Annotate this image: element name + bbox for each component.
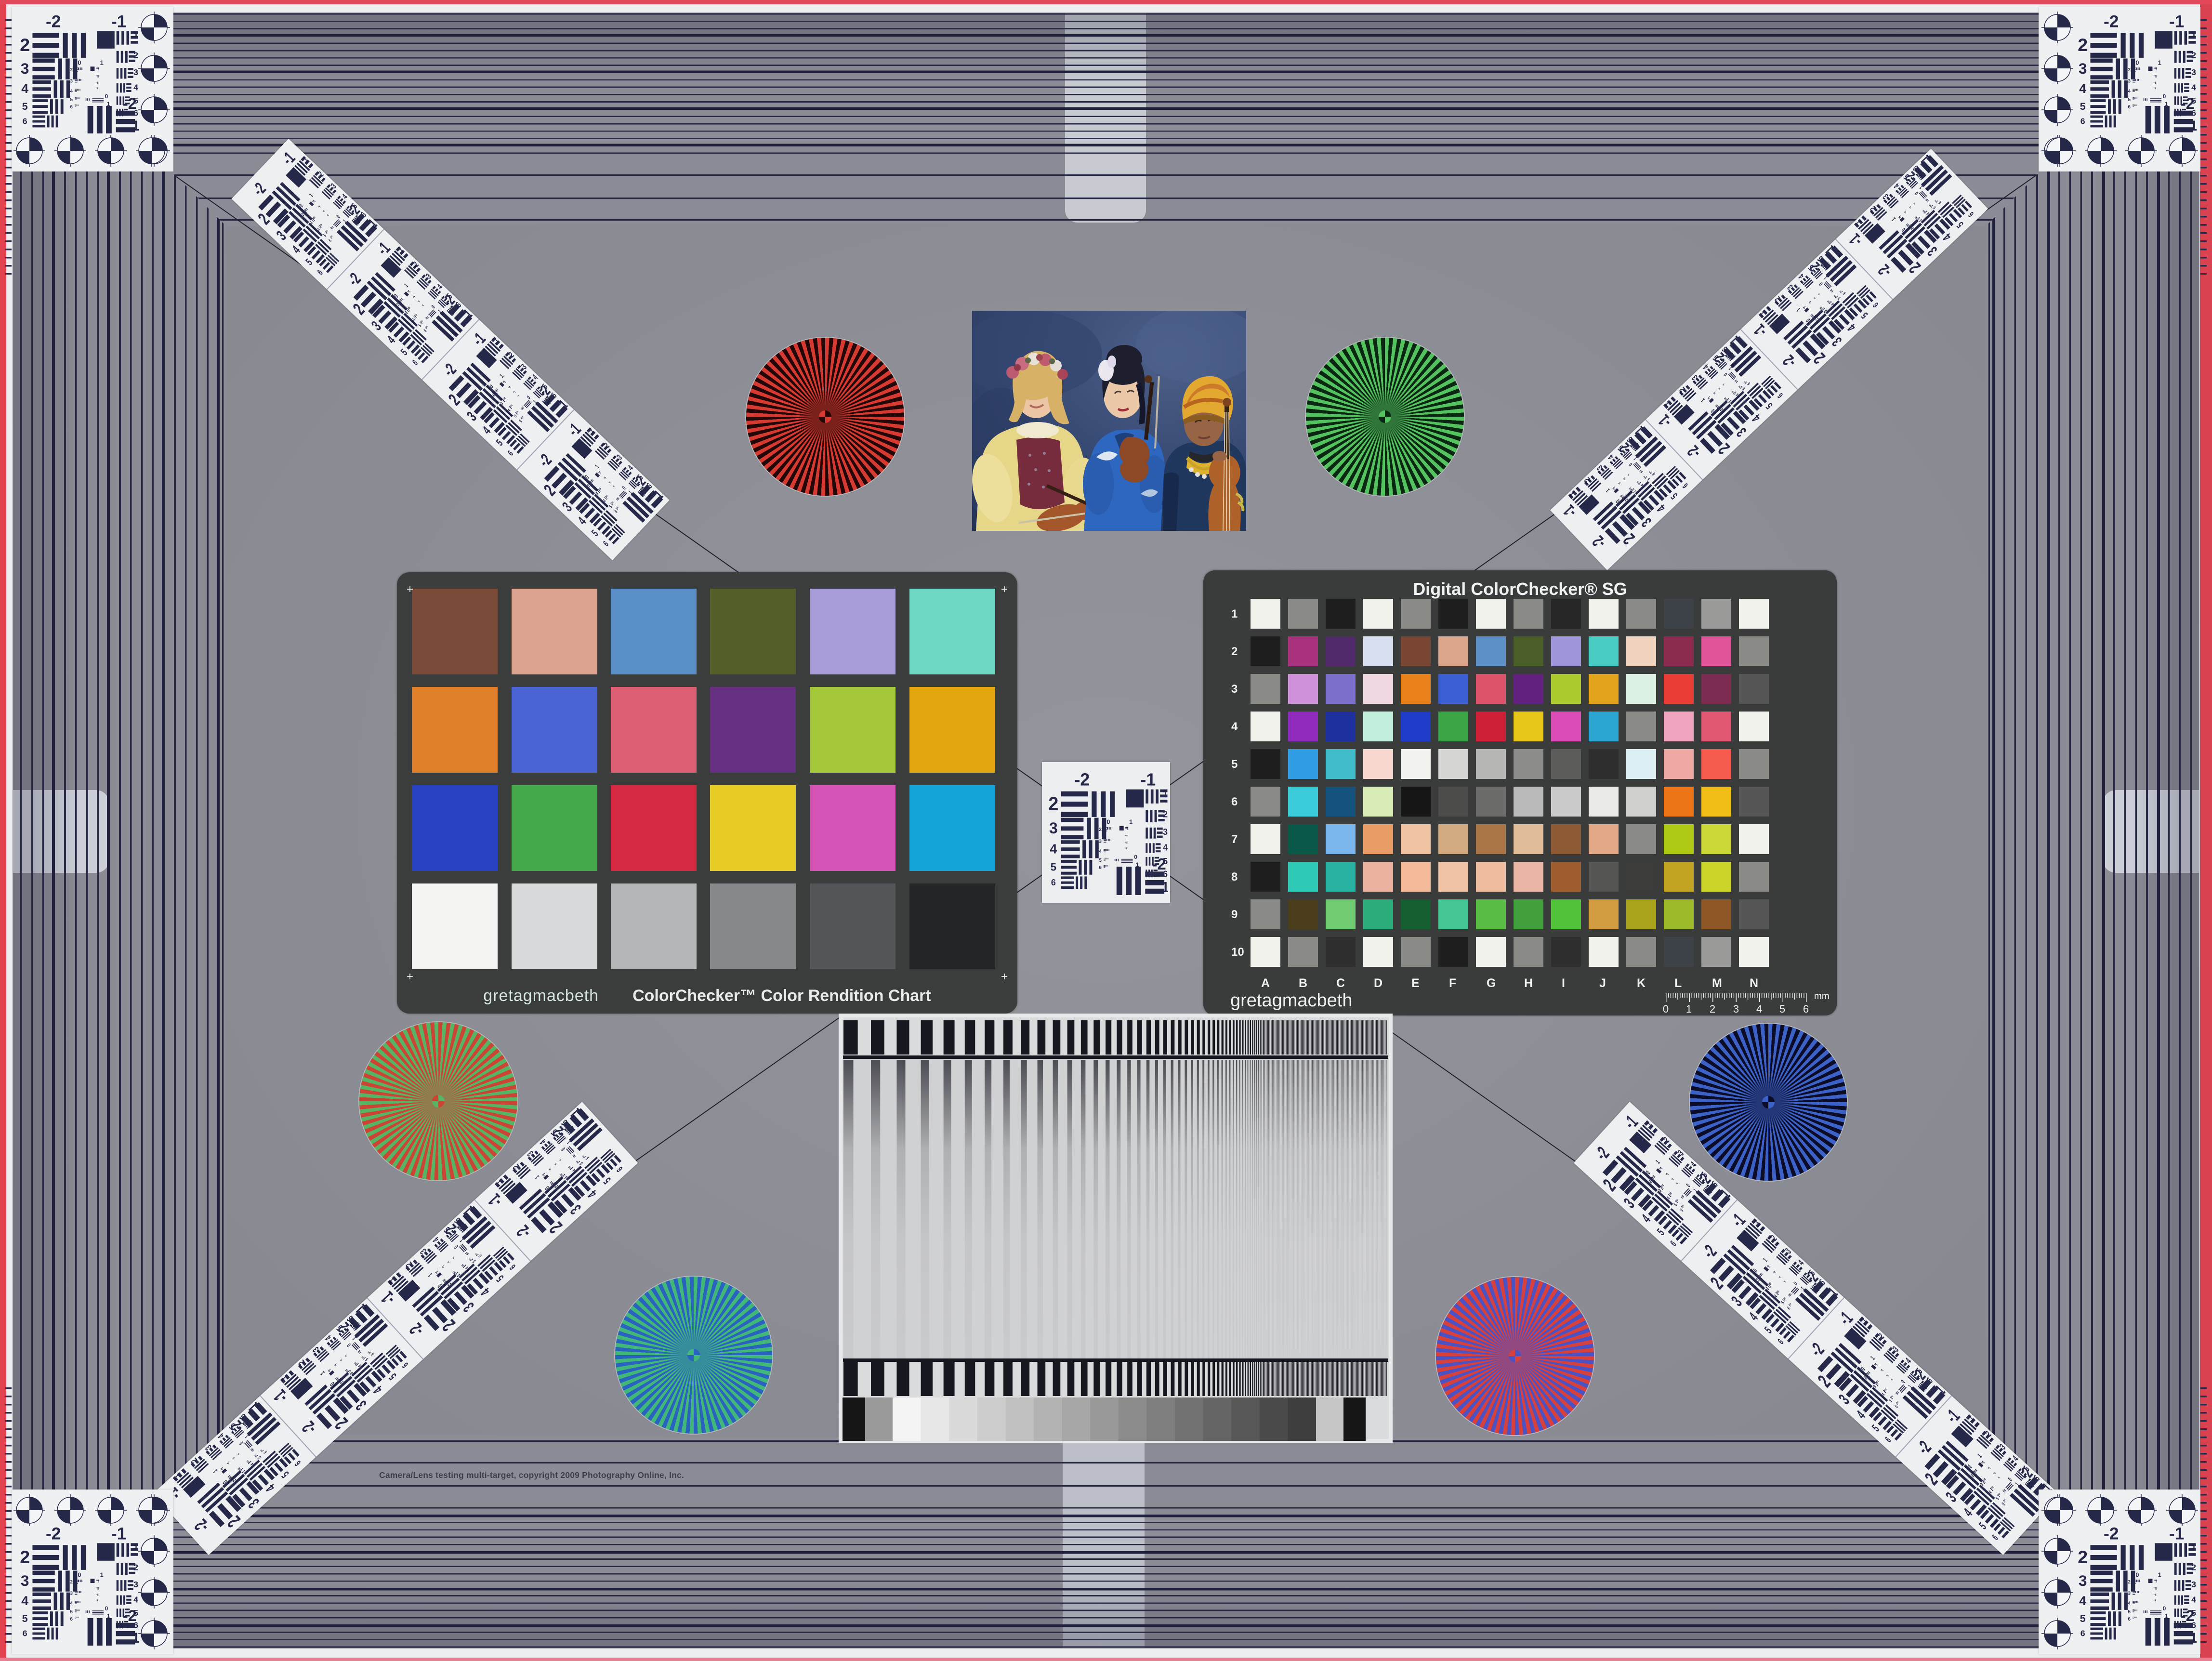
svg-text:3: 3 xyxy=(1733,1003,1739,1015)
svg-text:2: 2 xyxy=(1710,1003,1715,1015)
svg-text:5: 5 xyxy=(1779,1003,1785,1015)
svg-text:mm: mm xyxy=(1814,991,1830,1002)
svg-text:4: 4 xyxy=(1756,1003,1762,1015)
svg-text:0: 0 xyxy=(1663,1003,1669,1015)
svg-text:6: 6 xyxy=(1803,1003,1809,1015)
svg-text:1: 1 xyxy=(1686,1003,1692,1015)
